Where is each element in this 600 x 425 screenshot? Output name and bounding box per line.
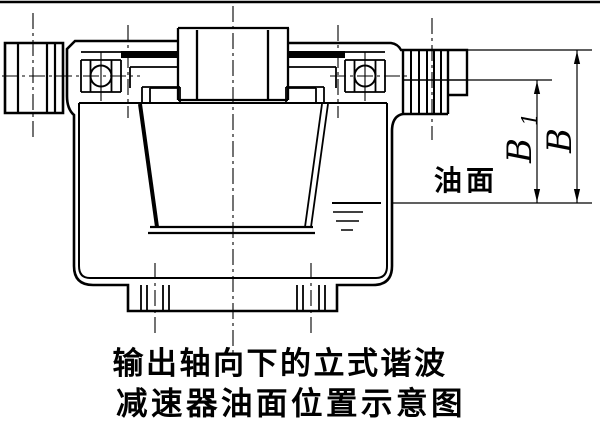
- arrowhead-b-bottom: [574, 189, 580, 202]
- figure-canvas: 油面 B 1 B 输出轴向下的立式谐波 减速器油面位置示意图: [0, 0, 600, 425]
- right-seal-band: [288, 51, 345, 58]
- right-flange-bolt-section-lines: [411, 50, 441, 114]
- arrowhead-b1-top: [534, 81, 540, 94]
- liquid-level-symbol: [333, 212, 363, 230]
- left-shaft-block-divider-lines: [18, 43, 55, 113]
- caption-line-1: 输出轴向下的立式谐波: [113, 346, 448, 382]
- cup-bottom: [148, 227, 315, 233]
- cup-left-wall: [140, 104, 157, 227]
- left-seal-band: [121, 51, 178, 58]
- housing-outer-profile: [67, 41, 403, 311]
- technical-drawing-page: 油面 B 1 B 输出轴向下的立式谐波 减速器油面位置示意图: [0, 0, 600, 425]
- dimension-label-b: B: [540, 128, 580, 154]
- oil-surface-label: 油面: [434, 164, 498, 197]
- arrowhead-b1-bottom: [534, 189, 540, 202]
- dimension-label-b1: B: [500, 138, 540, 164]
- dimension-label-b1-subscript: 1: [518, 113, 542, 126]
- arrowhead-b-top: [574, 51, 580, 64]
- cup-right-wall: [305, 104, 328, 227]
- caption-line-2: 减速器油面位置示意图: [116, 385, 466, 422]
